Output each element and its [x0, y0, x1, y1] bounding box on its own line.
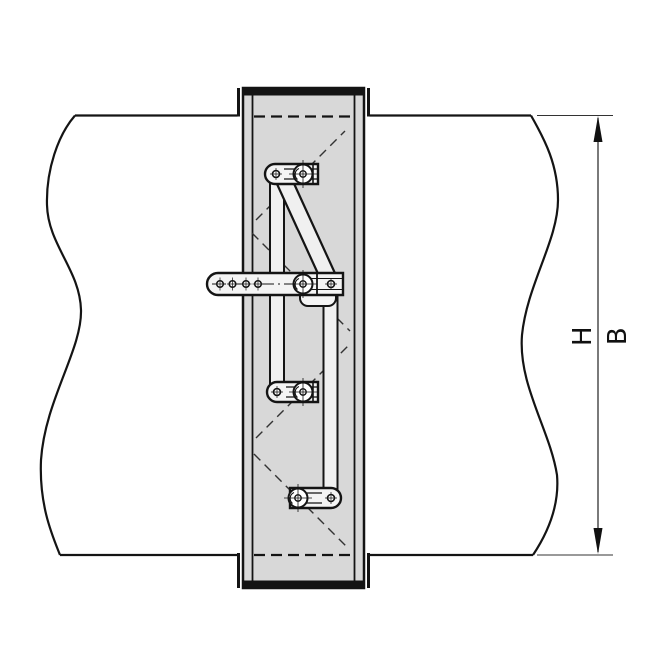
link-rod-right — [324, 286, 338, 494]
duct-break-line-right — [522, 116, 558, 556]
dimension-h-b: H B — [537, 116, 633, 556]
dimension-label-h: H — [568, 326, 598, 346]
drawing-canvas: H B — [0, 0, 660, 667]
duct-break-line-left — [41, 116, 81, 556]
dimension-arrow-up — [594, 116, 603, 142]
damper-section-drawing: H B — [0, 0, 660, 667]
dimension-label-b: B — [603, 327, 633, 345]
frame-cap-bottom — [244, 581, 364, 588]
blade-axle-bracket-middle — [267, 378, 318, 406]
blade-axle-bracket-top — [265, 160, 318, 188]
blade-axle-bracket-bottom — [284, 484, 341, 512]
frame-cap-top — [244, 89, 364, 96]
dimension-arrow-down — [594, 528, 603, 554]
